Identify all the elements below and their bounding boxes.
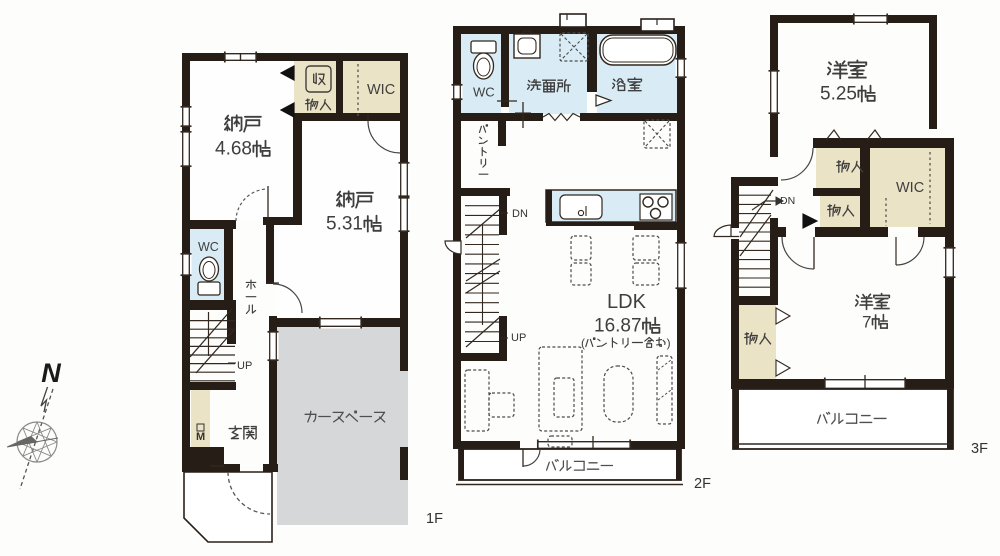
svg-text:WC: WC	[473, 85, 495, 100]
svg-text:5.25: 5.25	[820, 84, 857, 105]
svg-text:7: 7	[862, 313, 871, 332]
svg-text:N: N	[41, 358, 61, 388]
svg-text:16.87: 16.87	[594, 316, 642, 337]
svg-text:WC: WC	[198, 240, 219, 254]
svg-text:DN: DN	[512, 208, 528, 220]
svg-text:LDK: LDK	[607, 291, 647, 313]
svg-text:): )	[667, 336, 671, 350]
svg-text:4.68: 4.68	[215, 139, 252, 160]
svg-text:M: M	[196, 431, 205, 443]
svg-text:1F: 1F	[426, 511, 443, 527]
svg-text:2F: 2F	[694, 476, 711, 492]
svg-text:WIC: WIC	[367, 82, 395, 98]
svg-text:(: (	[581, 336, 585, 350]
svg-text:3F: 3F	[971, 441, 988, 457]
svg-text:WIC: WIC	[896, 180, 924, 196]
svg-text:UP: UP	[511, 332, 526, 344]
svg-text:UP: UP	[237, 360, 252, 372]
svg-text:DN: DN	[780, 195, 795, 207]
svg-text:5.31: 5.31	[326, 214, 363, 235]
